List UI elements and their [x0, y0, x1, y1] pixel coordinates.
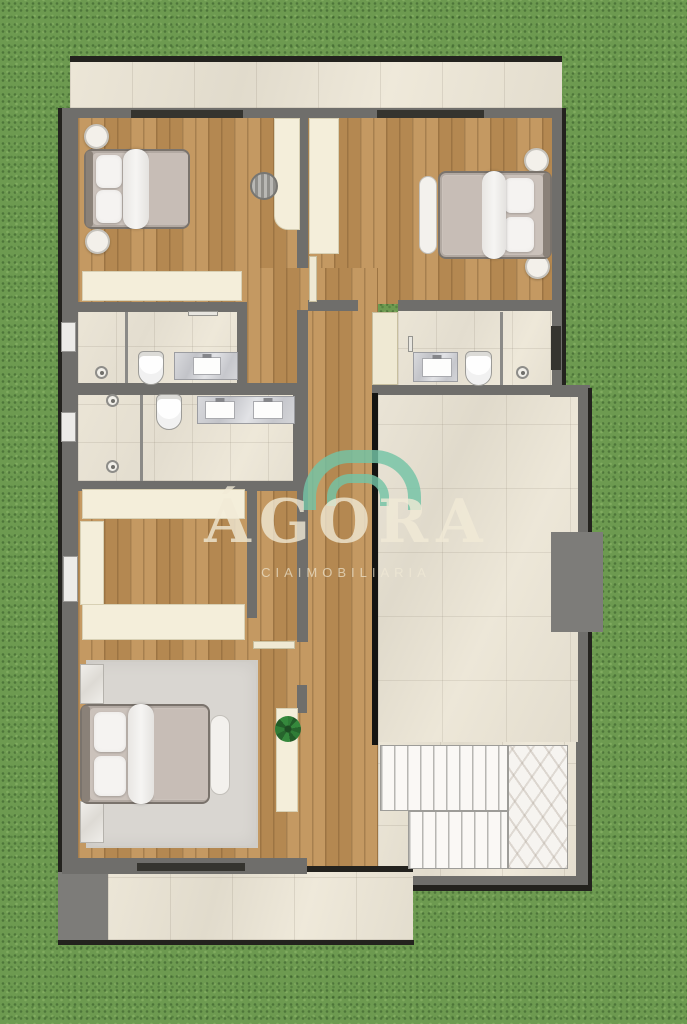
great-room-floor [378, 395, 578, 745]
bath2-shower-drain2-icon [106, 460, 119, 473]
stairs-upper-flight [380, 745, 508, 811]
stair-east-wall [576, 742, 588, 882]
great-room-west-edge [372, 393, 378, 745]
closet-wardrobe-left [80, 521, 104, 605]
left-window-1 [61, 322, 76, 352]
bed-blanket [149, 153, 188, 225]
bedroom1-desk [274, 118, 300, 230]
terrace-block [58, 872, 108, 942]
top-terrace-floor [70, 62, 562, 108]
bedroom1-nightstand-bottom [85, 229, 110, 254]
bed-pillow [96, 190, 122, 223]
bath3-shower-drain-icon [516, 366, 529, 379]
bed-duvet [128, 704, 154, 804]
bedroom2-nightstand-top [524, 148, 549, 173]
bedroom1-door-leaf [309, 256, 317, 302]
bath2-shower-divider [140, 395, 143, 481]
bath3-toilet [465, 351, 492, 386]
right-wall-lower-outline [588, 388, 592, 890]
master-nightstand-bottom [80, 801, 104, 843]
bath3-towel-bar [408, 336, 413, 352]
bed-blanket [443, 176, 482, 254]
bed-pillow [504, 178, 534, 213]
bedroom1-dresser [82, 271, 242, 301]
bath3-door-leaf [372, 312, 398, 385]
master-nightstand-top [80, 664, 104, 704]
plant-icon [275, 716, 301, 742]
bed-pillow [96, 155, 122, 188]
bathroom1-east-wall [237, 302, 247, 392]
bath1-toilet [138, 351, 164, 385]
bathrooms-divider-wall [62, 383, 307, 395]
hall-terrace-threshold [307, 866, 413, 872]
left-wall [62, 108, 78, 874]
bedroom1-chair [250, 172, 278, 200]
closet-east-wall [247, 490, 257, 618]
bath2-vanity [197, 396, 295, 424]
floor-plan-canvas: ÁGORA CIAIMOBILIARIA [0, 0, 687, 1024]
bed-duvet [482, 171, 506, 259]
master-east-wall-stub [297, 685, 307, 713]
master-door-leaf [253, 641, 295, 649]
left-window-2 [61, 412, 76, 442]
bath1-shower-drain-icon [95, 366, 108, 379]
master-bench [210, 715, 230, 795]
bedroom2-south-wall-east [398, 300, 552, 311]
bathroom3-south-wall [372, 385, 552, 395]
master-bed [80, 704, 210, 804]
bed-headboard [86, 151, 93, 227]
master-window-opening [137, 863, 245, 871]
closet-wardrobe-top [82, 489, 245, 519]
bath3-shower-divider [500, 312, 503, 385]
bath2-shower-drain-icon [106, 394, 119, 407]
bed-headboard [82, 706, 90, 802]
terrace-door-opening-right [377, 110, 484, 118]
bottom-terrace-floor [108, 872, 413, 940]
bedroom2-bench [419, 176, 437, 254]
bath1-shower-divider [125, 312, 128, 383]
right-window-bath [551, 326, 561, 370]
bed-duvet [123, 149, 149, 229]
bedroom2-bed [438, 171, 552, 259]
bedroom2-wardrobe [309, 118, 339, 254]
closet-wardrobe-bottom [82, 604, 245, 640]
bath1-sink [193, 357, 221, 375]
bed-pillow [504, 217, 534, 252]
bath3-sink [422, 358, 452, 377]
stair-hall-south-wall [413, 876, 578, 885]
bedroom1-bed [84, 149, 190, 229]
bedroom1-nightstand-top [84, 124, 109, 149]
bed-headboard [543, 173, 550, 257]
bath1-towel-bar [188, 311, 218, 316]
bath3-vanity [413, 352, 458, 382]
stair-hall-south-outline [413, 885, 592, 891]
bath2-toilet [156, 394, 182, 430]
bath1-vanity [174, 352, 238, 380]
stair-landing [508, 745, 568, 869]
bed-blanket [154, 709, 208, 799]
bottom-terrace-edge [58, 940, 414, 945]
stairs-lower-flight [408, 811, 508, 869]
fireplace-block [551, 532, 603, 632]
bed-pillow [94, 756, 126, 796]
bathroom2-east-wall [293, 393, 308, 483]
bath2-sink-left [205, 401, 235, 419]
left-window-3 [63, 556, 78, 602]
bed-pillow [94, 712, 126, 752]
bath2-sink-right [253, 401, 283, 419]
terrace-door-opening-left [131, 110, 243, 118]
bedroom1-south-wall [62, 302, 247, 312]
right-wall-upper-outline [562, 108, 566, 388]
